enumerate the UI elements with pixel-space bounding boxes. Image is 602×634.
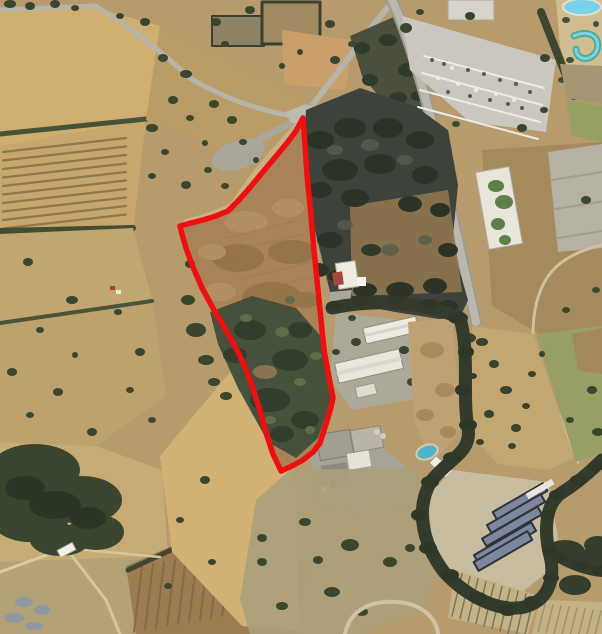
farmhouse-red-dot	[110, 286, 115, 290]
pond-tree	[361, 244, 381, 256]
compound-yard	[282, 30, 352, 90]
farmhouse-white-dot	[116, 290, 121, 294]
waterpark-pool	[563, 0, 601, 15]
house-red-roof	[332, 271, 344, 285]
house-canopy	[357, 277, 366, 286]
satellite-map-svg	[0, 0, 602, 634]
satellite-map[interactable]	[0, 0, 602, 634]
parcel-woods-clearing	[253, 365, 277, 379]
